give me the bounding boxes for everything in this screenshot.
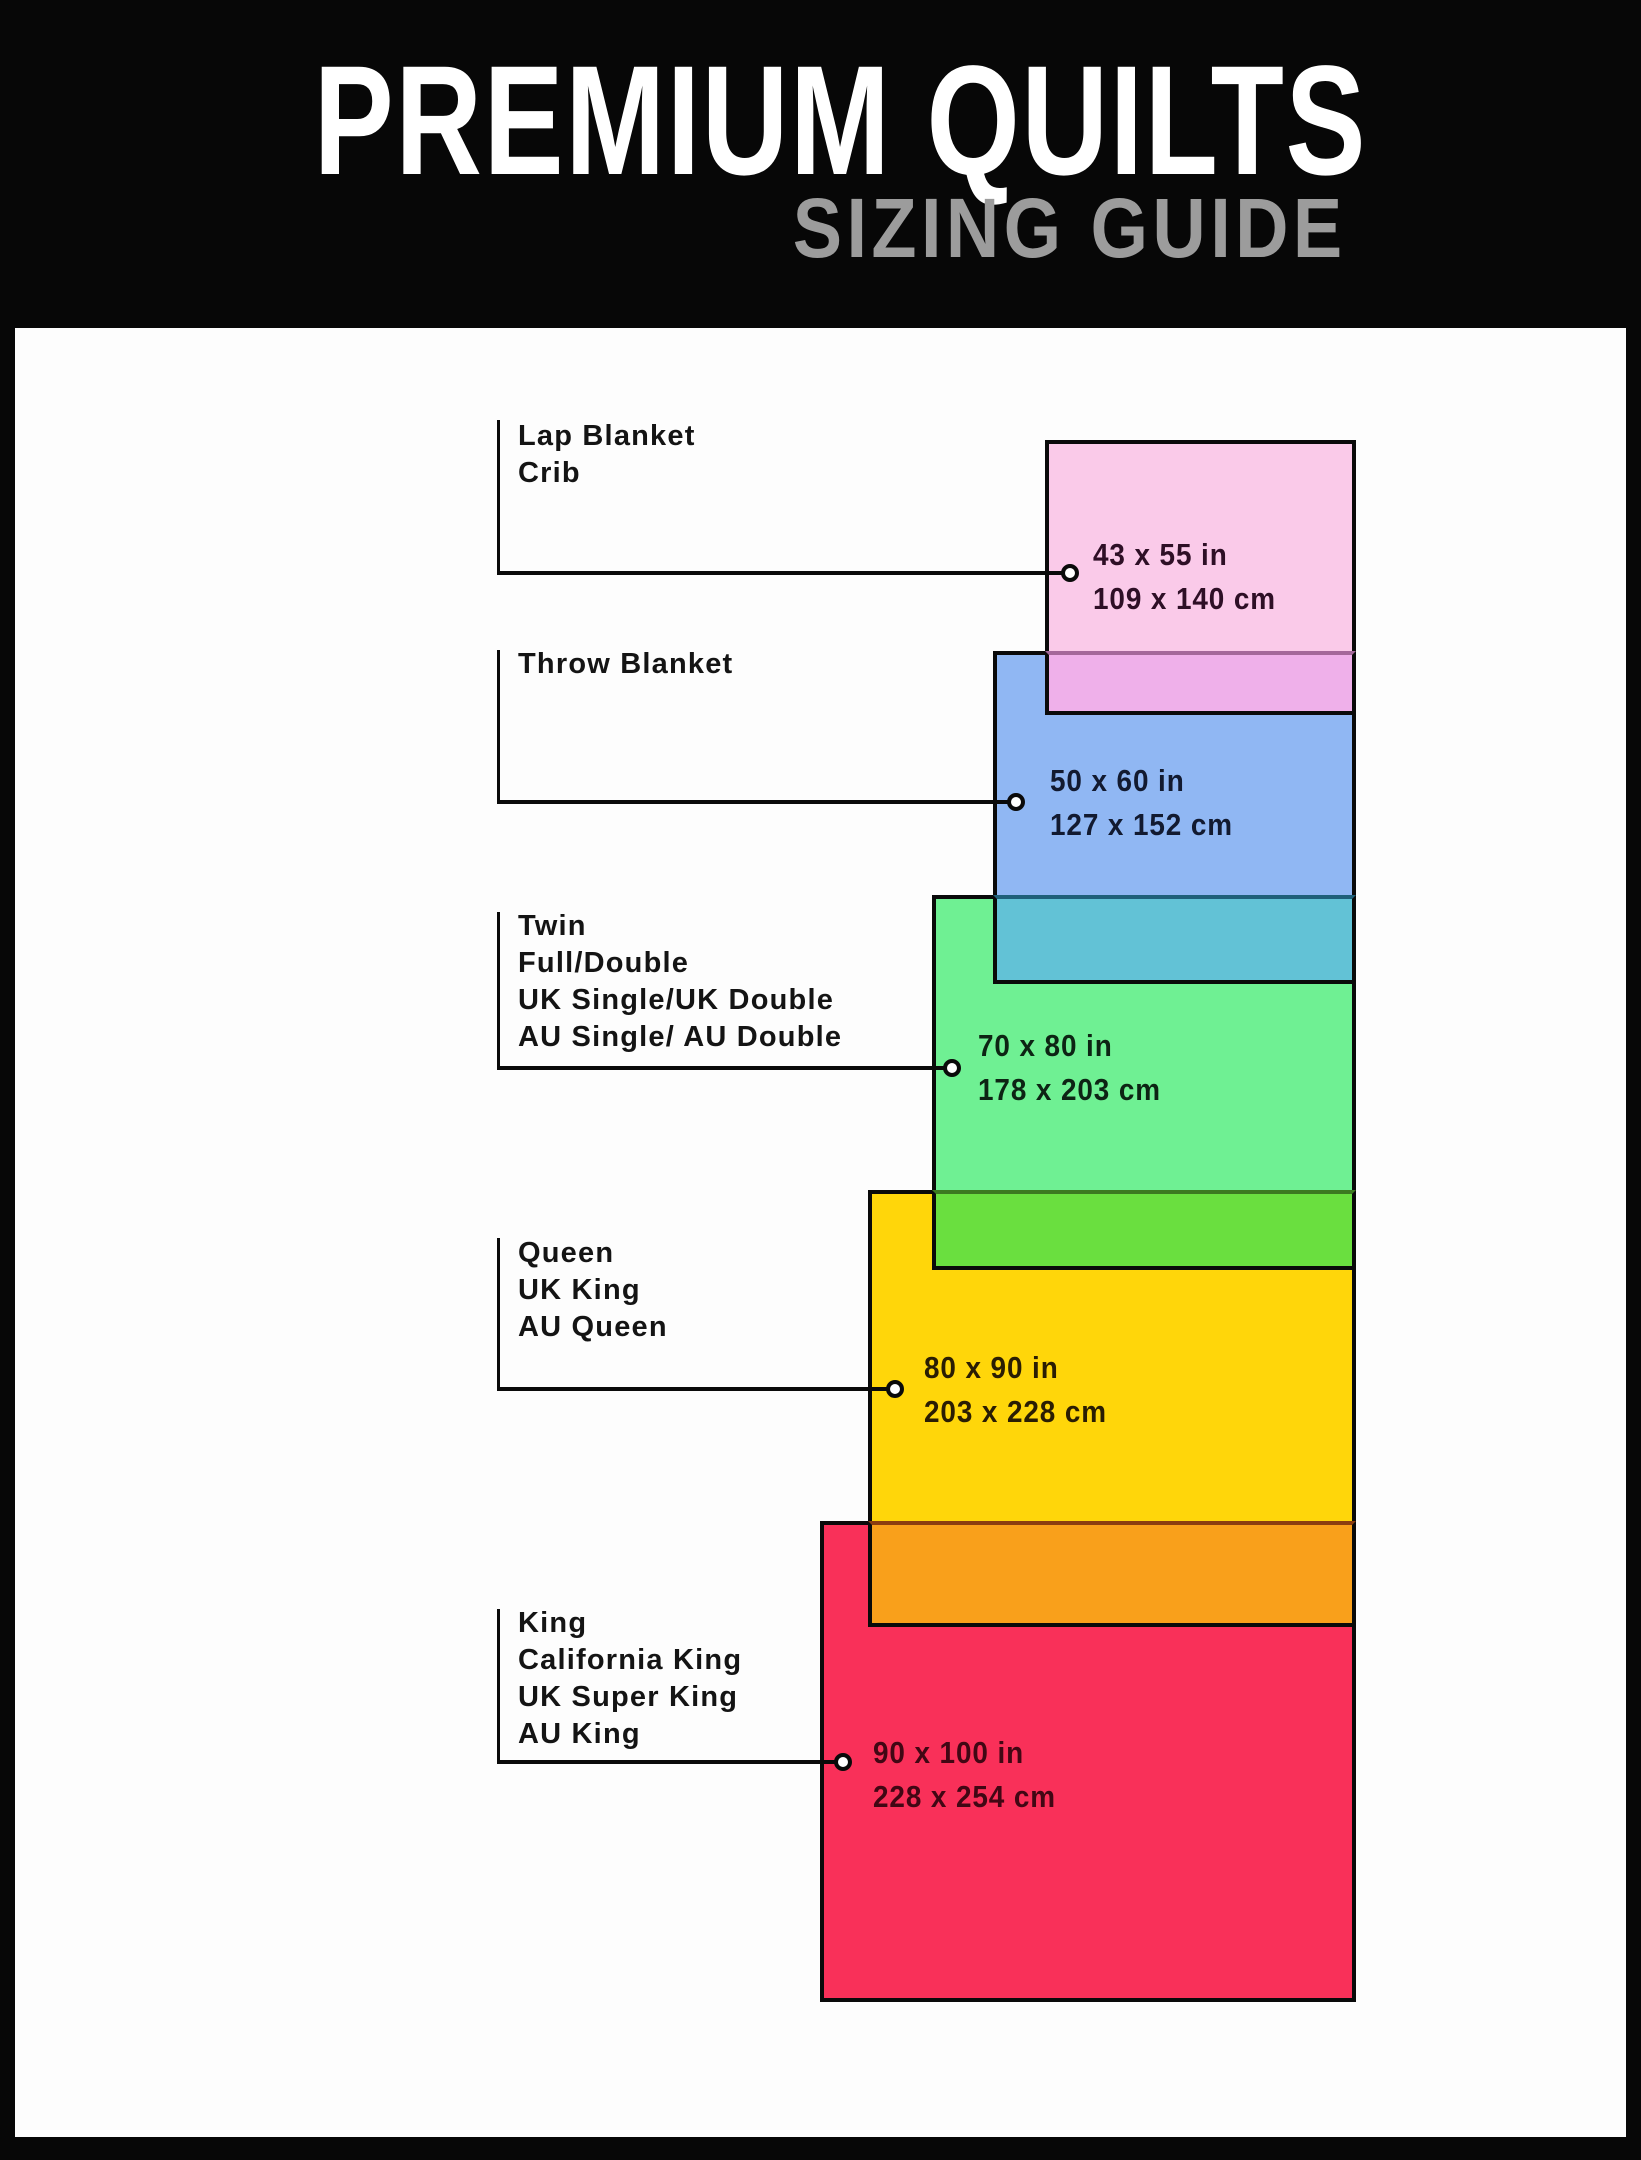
size-label-line: Throw Blanket bbox=[518, 646, 733, 683]
overlap-band-lap-blanket-over-throw-blanket bbox=[1045, 651, 1356, 715]
overlap-band-twin-over-queen bbox=[932, 1190, 1356, 1270]
size-label-lap-blanket: Lap BlanketCrib bbox=[518, 418, 696, 492]
leader-line-twin bbox=[498, 1066, 952, 1070]
size-label-line: Queen bbox=[518, 1235, 668, 1272]
leader-dot-throw-blanket bbox=[1007, 793, 1025, 811]
dimensions-queen: 80 x 90 in203 x 228 cm bbox=[924, 1346, 1107, 1434]
size-label-line: Full/Double bbox=[518, 945, 842, 982]
subheader: SIZING GUIDE bbox=[470, 178, 1641, 278]
size-label-line: AU King bbox=[518, 1716, 742, 1753]
dimensions-cm: 203 x 228 cm bbox=[924, 1390, 1107, 1434]
label-connector-twin bbox=[497, 912, 500, 1070]
size-label-line: UK King bbox=[518, 1272, 668, 1309]
dimensions-lap-blanket: 43 x 55 in109 x 140 cm bbox=[1093, 533, 1276, 621]
size-label-twin: TwinFull/DoubleUK Single/UK DoubleAU Sin… bbox=[518, 908, 842, 1056]
dimensions-cm: 228 x 254 cm bbox=[873, 1775, 1056, 1819]
size-label-line: King bbox=[518, 1605, 742, 1642]
leader-dot-king bbox=[834, 1753, 852, 1771]
label-connector-lap-blanket bbox=[497, 420, 500, 575]
label-connector-throw-blanket bbox=[497, 650, 500, 804]
dimensions-inches: 90 x 100 in bbox=[873, 1731, 1056, 1775]
leader-dot-lap-blanket bbox=[1061, 564, 1079, 582]
overlap-band-queen-over-king bbox=[868, 1521, 1356, 1627]
size-label-line: Crib bbox=[518, 455, 696, 492]
dimensions-inches: 70 x 80 in bbox=[978, 1024, 1161, 1068]
leader-dot-queen bbox=[886, 1380, 904, 1398]
dimensions-inches: 80 x 90 in bbox=[924, 1346, 1107, 1390]
leader-line-queen bbox=[498, 1387, 895, 1391]
size-label-line: Lap Blanket bbox=[518, 418, 696, 455]
size-label-line: UK Single/UK Double bbox=[518, 982, 842, 1019]
dimensions-inches: 43 x 55 in bbox=[1093, 533, 1276, 577]
dimensions-inches: 50 x 60 in bbox=[1050, 759, 1233, 803]
size-label-line: AU Queen bbox=[518, 1309, 668, 1346]
label-connector-queen bbox=[497, 1238, 500, 1391]
page-subtitle: SIZING GUIDE bbox=[793, 180, 1347, 277]
leader-line-king bbox=[498, 1760, 843, 1764]
dimensions-twin: 70 x 80 in178 x 203 cm bbox=[978, 1024, 1161, 1112]
size-label-line: California King bbox=[518, 1642, 742, 1679]
size-label-line: AU Single/ AU Double bbox=[518, 1019, 842, 1056]
size-label-king: KingCalifornia KingUK Super KingAU King bbox=[518, 1605, 742, 1753]
quilt-sizing-infographic: { "header": { "title": "PREMIUM QUILTS",… bbox=[0, 0, 1641, 2160]
size-label-line: Twin bbox=[518, 908, 842, 945]
dimensions-cm: 178 x 203 cm bbox=[978, 1068, 1161, 1112]
leader-line-lap-blanket bbox=[498, 571, 1070, 575]
leader-dot-twin bbox=[943, 1059, 961, 1077]
leader-line-throw-blanket bbox=[498, 800, 1016, 804]
dimensions-king: 90 x 100 in228 x 254 cm bbox=[873, 1731, 1056, 1819]
dimensions-cm: 127 x 152 cm bbox=[1050, 803, 1233, 847]
dimensions-cm: 109 x 140 cm bbox=[1093, 577, 1276, 621]
size-label-throw-blanket: Throw Blanket bbox=[518, 646, 733, 683]
dimensions-throw-blanket: 50 x 60 in127 x 152 cm bbox=[1050, 759, 1233, 847]
overlap-band-throw-blanket-over-twin bbox=[993, 895, 1356, 984]
size-label-queen: QueenUK KingAU Queen bbox=[518, 1235, 668, 1346]
label-connector-king bbox=[497, 1609, 500, 1764]
size-label-line: UK Super King bbox=[518, 1679, 742, 1716]
